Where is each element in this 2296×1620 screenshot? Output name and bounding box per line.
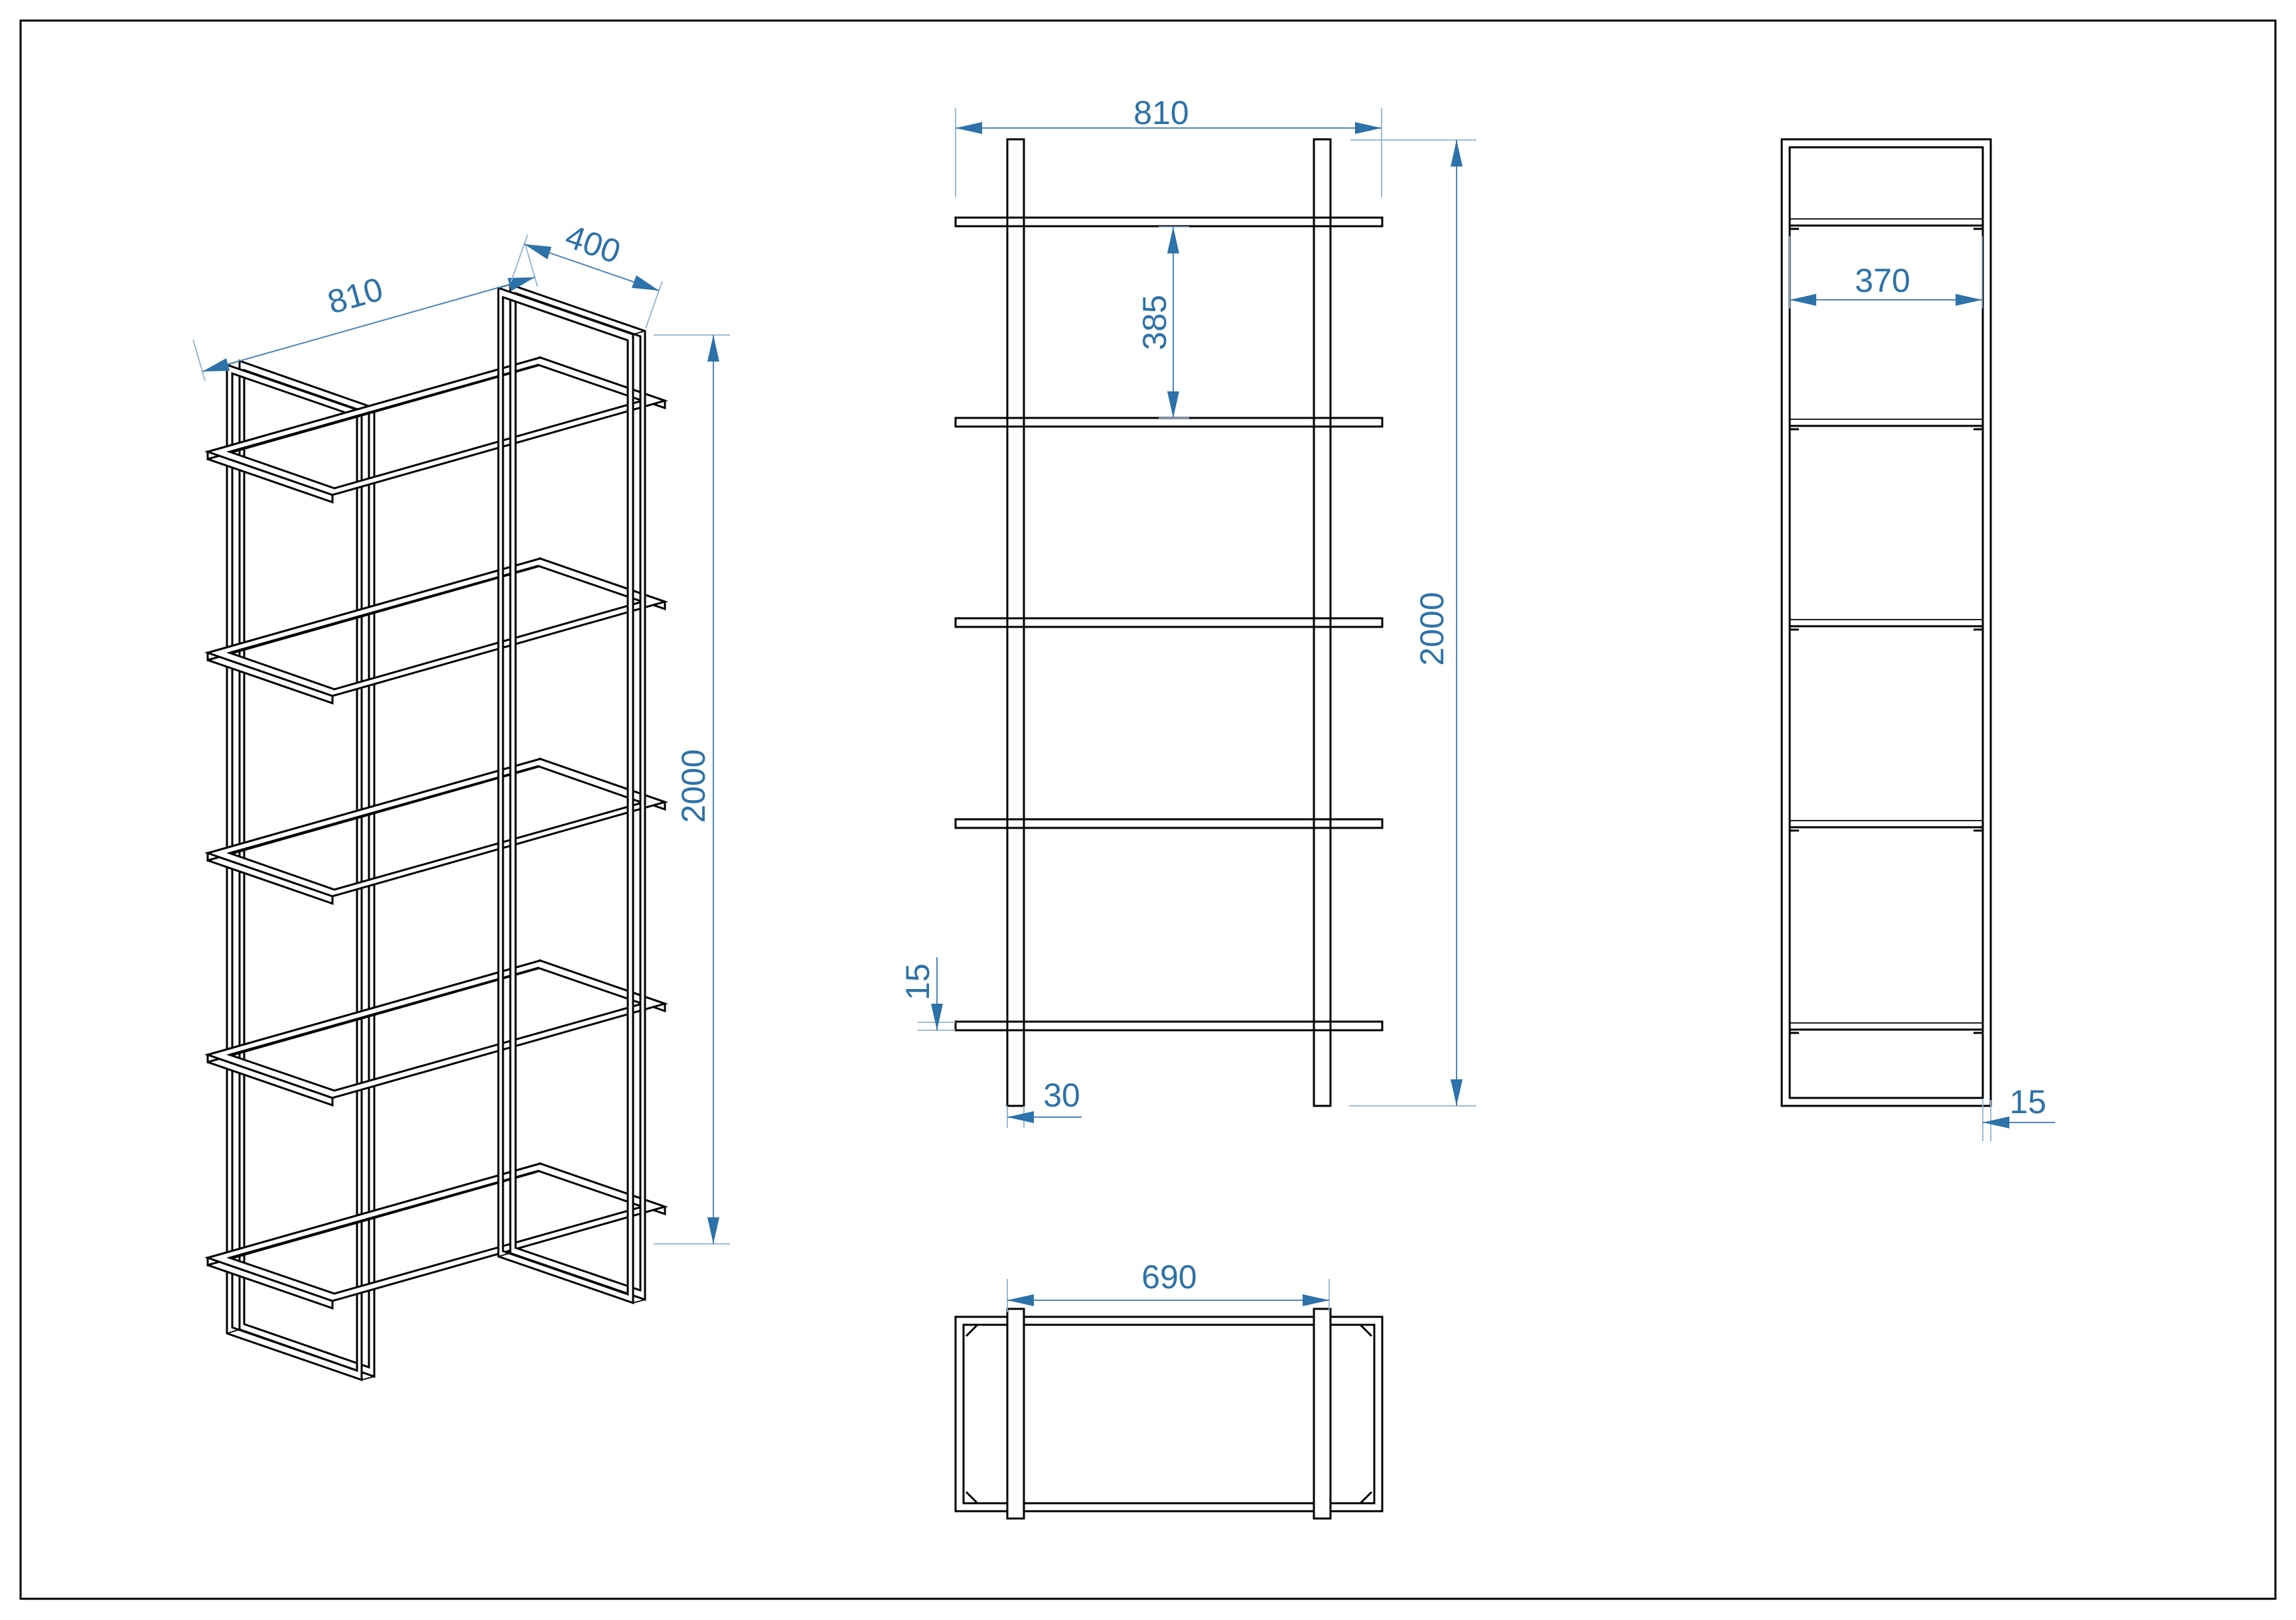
front-dim-width-label: 810 [1133, 94, 1188, 131]
front-dim-shelf-gap-label: 385 [1136, 295, 1173, 350]
top-dim-frame-spacing-label: 690 [1141, 1258, 1196, 1296]
side-dim-frame-thickness-label: 15 [2009, 1083, 2046, 1120]
side-dim-inner-depth-label: 370 [1855, 262, 1910, 299]
iso-dim-height-label: 2000 [675, 749, 712, 823]
front-dim-height-label: 2000 [1413, 592, 1451, 665]
front-dim-shelf-thickness-label: 15 [899, 963, 936, 1000]
drawing-sheet: 810 400 2000 [0, 0, 2296, 1620]
top-right-frame-bar [1314, 1309, 1330, 1519]
drawing-canvas: 810 400 2000 [0, 0, 2296, 1620]
front-dim-post-width-label: 30 [1043, 1077, 1080, 1114]
top-left-frame-bar [1007, 1309, 1024, 1519]
